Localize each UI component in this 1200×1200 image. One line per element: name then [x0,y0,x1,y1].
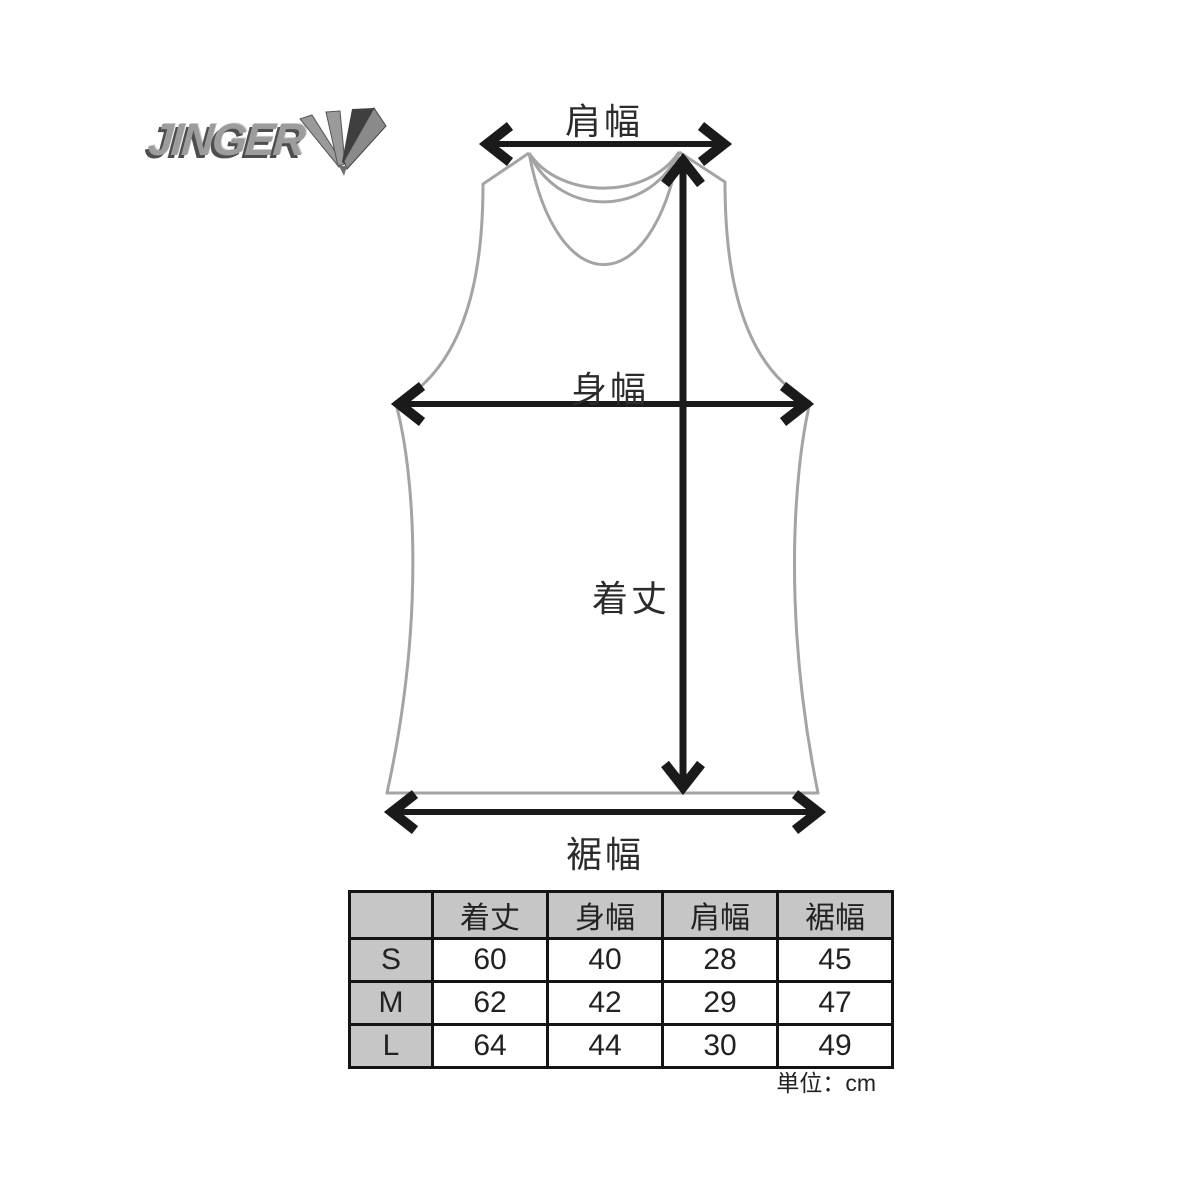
size-table-header-hem-width: 裾幅 [778,892,893,939]
length-arrow [665,161,701,787]
neckline-front-scoop-edge [529,152,679,265]
unit-note: 単位：cm [348,1064,876,1098]
size-table-header-length: 着丈 [433,892,548,939]
size-chart-image: JINGER [0,0,1200,1200]
size-table-row-m: M 62 42 29 47 [350,982,893,1025]
size-value-cell: 45 [778,939,893,982]
garment-outline [387,152,818,793]
shoulder-width-label: 肩幅 [565,93,643,145]
neckline-back-inner-edge [531,156,677,202]
length-label: 着丈 [592,570,670,622]
hem-width-label: 裾幅 [566,826,644,878]
size-value-cell: 40 [548,939,663,982]
size-table-row-s: S 60 40 28 45 [350,939,893,982]
size-table-header-shoulder-width: 肩幅 [663,892,778,939]
size-table-header-body-width: 身幅 [548,892,663,939]
size-row-label: L [350,1025,433,1068]
size-value-cell: 62 [433,982,548,1025]
size-table-corner-cell [350,892,433,939]
size-row-label: M [350,982,433,1025]
size-table-header-row: 着丈 身幅 肩幅 裾幅 [350,892,893,939]
size-value-cell: 49 [778,1025,893,1068]
size-value-cell: 29 [663,982,778,1025]
size-row-label: S [350,939,433,982]
size-value-cell: 42 [548,982,663,1025]
size-value-cell: 47 [778,982,893,1025]
size-value-cell: 44 [548,1025,663,1068]
body-width-label: 身幅 [571,361,649,413]
size-table: 着丈 身幅 肩幅 裾幅 S 60 40 28 45 M 62 42 29 47 … [348,890,894,1069]
size-value-cell: 60 [433,939,548,982]
size-value-cell: 64 [433,1025,548,1068]
size-value-cell: 28 [663,939,778,982]
hem-width-arrow [392,794,818,830]
size-value-cell: 30 [663,1025,778,1068]
size-table-row-l: L 64 44 30 49 [350,1025,893,1068]
